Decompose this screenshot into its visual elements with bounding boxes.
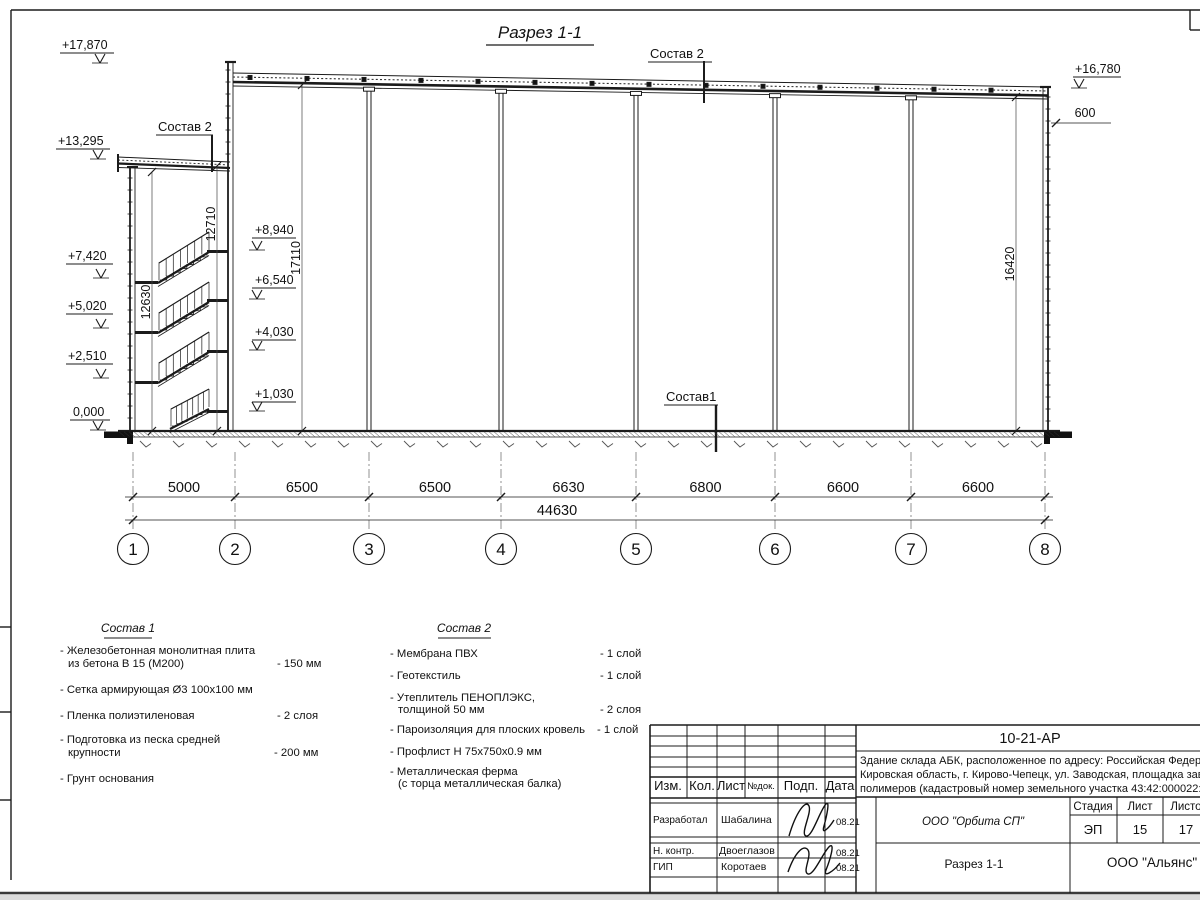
list-item: крупности: [68, 747, 121, 759]
ground-mark: [833, 441, 844, 447]
tb-sheets-label: Листов: [1170, 801, 1200, 813]
elevation-mark: 0,000: [70, 405, 110, 430]
elevation-arrow: [252, 402, 257, 411]
list-value: - 1 слой: [597, 724, 638, 736]
purlin-block: [362, 77, 366, 81]
tb-role: Н. контр.: [653, 846, 694, 857]
ground-mark: [998, 441, 1009, 447]
stair-flight: [170, 389, 209, 433]
annex-slabs: [135, 252, 228, 412]
grid-bubble-label: 8: [1040, 540, 1049, 559]
list-value: - 2 слоя: [600, 704, 641, 716]
foundation-right: [1044, 432, 1072, 445]
tb-drawing-name: Разрез 1-1: [945, 857, 1004, 871]
list-value: - 1 слой: [600, 648, 641, 660]
column-capital: [496, 89, 507, 93]
elevation-arrow: [1074, 79, 1079, 88]
elevation-value: +2,510: [68, 349, 107, 363]
annotations: Разрез 1-1 Состав 2 Состав 2 Состав1 126…: [139, 23, 1111, 405]
tb-name: Двоеглазов: [719, 845, 775, 857]
dim-600: 600: [1075, 106, 1096, 120]
purlin-block: [647, 82, 651, 86]
ground-mark: [569, 441, 580, 447]
elevation-value: +8,940: [255, 223, 294, 237]
purlin-block: [419, 78, 423, 82]
purlin-block: [704, 83, 708, 87]
dim-span-label: 6600: [827, 480, 859, 496]
ground-mark: [239, 441, 250, 447]
purlin-block: [875, 86, 879, 90]
callout-sostav1: Состав1: [666, 389, 716, 404]
ground-mark: [701, 441, 712, 447]
list-item: из бетона В 15 (М200): [68, 658, 184, 670]
elevation-value: +1,030: [255, 387, 294, 401]
tb-col-data: Дата: [826, 778, 856, 793]
elevation-arrow: [95, 54, 100, 63]
purlin-block: [248, 75, 252, 79]
ground-mark: [536, 441, 547, 447]
elevation-value: +4,030: [255, 325, 294, 339]
grid-bubble-label: 2: [230, 540, 239, 559]
grid-bubble-label: 5: [631, 540, 640, 559]
tb-name: Шабалина: [721, 814, 772, 826]
ground-mark: [965, 441, 976, 447]
list-item: толщиной 50 мм: [398, 704, 485, 716]
ground-mark: [305, 441, 316, 447]
ground-mark: [767, 441, 778, 447]
grid-bubble-label: 7: [906, 540, 915, 559]
dim-span-label: 5000: [168, 480, 200, 496]
tb-sheets-value: 17: [1179, 822, 1193, 837]
ground-mark: [734, 441, 745, 447]
elevation-value: +16,780: [1075, 62, 1121, 76]
ground-mark: [338, 441, 349, 447]
elevation-mark: +6,540: [249, 273, 296, 299]
section-drawing-sheet: Разрез 1-1 Состав 2 Состав 2 Состав1 126…: [0, 0, 1200, 900]
tb-sheet-label: Лист: [1128, 801, 1154, 813]
purlin-block: [989, 88, 993, 92]
ground-mark: [602, 441, 613, 447]
foundation-left: [104, 432, 133, 445]
ground-mark: [866, 441, 877, 447]
elevation-value: +6,540: [255, 273, 294, 287]
elevation-arrow: [93, 421, 98, 430]
dim-span-label: 6630: [552, 480, 584, 496]
elevation-mark: +13,295: [56, 134, 110, 159]
elevation-arrow: [96, 269, 101, 278]
list-value: - 200 мм: [274, 747, 318, 759]
sostav2-header: Состав 2: [437, 621, 491, 635]
column-capital: [906, 96, 917, 100]
tb-role: Разработал: [653, 814, 708, 826]
ground-mark: [140, 441, 151, 447]
dim-total-label: 44630: [537, 503, 577, 519]
grid-bubble-label: 3: [364, 540, 373, 559]
list-item: - Подготовка из песка средней: [60, 734, 220, 746]
building-section: [104, 61, 1072, 452]
stair-flight: [158, 332, 209, 387]
tb-org: ООО "Орбита СП": [922, 816, 1025, 828]
dim-span-label: 6800: [689, 480, 721, 496]
tb-col-podp: Подп.: [784, 778, 819, 793]
tb-sheet-value: 15: [1133, 822, 1147, 837]
ground-mark: [503, 441, 514, 447]
tb-col-kol: Кол.: [689, 778, 715, 793]
elevation-value: +5,020: [68, 299, 107, 313]
tb-date: 08.21: [836, 848, 860, 859]
ground-mark: [800, 441, 811, 447]
list-item: - Железобетонная монолитная плита: [60, 645, 256, 657]
ground-mark: [206, 441, 217, 447]
dim-span-label: 6500: [419, 480, 451, 496]
railing: [159, 232, 209, 263]
purlin-block: [932, 87, 936, 91]
ground-mark: [1031, 441, 1042, 447]
dim-span-label: 6600: [962, 480, 994, 496]
ground-mark: [272, 441, 283, 447]
list-item: - Профлист Н 75х750х0.9 мм: [390, 746, 542, 758]
stair-flight: [158, 282, 209, 337]
ground-mark: [932, 441, 943, 447]
elevation-value: +13,295: [58, 134, 104, 148]
ground-mark: [371, 441, 382, 447]
ground-mark: [668, 441, 679, 447]
elevation-arrow: [252, 341, 257, 350]
purlin-block: [590, 81, 594, 85]
signature: [789, 803, 834, 836]
elevation-mark: +2,510: [66, 349, 113, 378]
list-item: - Сетка армирующая Ø3 100х100 мм: [60, 684, 253, 696]
elevation-mark: +7,420: [66, 249, 113, 278]
list-item: - Мембрана ПВХ: [390, 648, 478, 660]
ground-mark: [173, 441, 184, 447]
dimension-chain: 1234567850006500650066306800660066004463…: [118, 452, 1061, 565]
tb-role: ГИП: [653, 862, 673, 873]
dim-span-label: 6500: [286, 480, 318, 496]
purlin-block: [533, 80, 537, 84]
elevation-arrow: [252, 241, 257, 250]
vdim-16420: 16420: [1003, 247, 1017, 282]
vdim-12630: 12630: [139, 285, 153, 320]
ground-mark: [404, 441, 415, 447]
list-item: - Грунт основания: [60, 773, 154, 785]
elevation-arrow: [93, 150, 98, 159]
tb-col-izm: Изм.: [654, 778, 682, 793]
sostav1-header: Состав 1: [101, 621, 155, 635]
stair-flight: [158, 232, 209, 287]
sostav1-list: Состав 1 - Железобетонная монолитная пли…: [60, 621, 321, 785]
elevation-value: +17,870: [62, 38, 108, 52]
signature: [788, 846, 840, 874]
elevation-arrow: [252, 290, 257, 299]
elevation-mark: +17,870: [60, 38, 114, 63]
column-capital: [770, 94, 781, 98]
railing: [159, 332, 209, 363]
column-capital: [364, 87, 375, 91]
tb-stage-label: Стадия: [1073, 801, 1112, 813]
list-value: - 150 мм: [277, 658, 321, 670]
list-value: - 1 слой: [600, 670, 641, 682]
elevation-mark: +1,030: [249, 387, 296, 411]
elevation-arrow: [96, 319, 101, 328]
tb-date: 08.21: [836, 817, 860, 828]
tb-name: Коротаев: [721, 861, 767, 873]
callout-sostav2-top: Состав 2: [650, 46, 704, 61]
callout-sostav2-left: Состав 2: [158, 119, 212, 134]
tb-doc-code: 10-21-АР: [999, 731, 1060, 747]
list-item: - Геотекстиль: [390, 670, 461, 682]
drawing-title: Разрез 1-1: [498, 23, 582, 42]
elevation-mark: +16,780: [1071, 62, 1121, 88]
ground-mark: [437, 441, 448, 447]
tb-desc-line2: Кировская область, г. Кирово-Чепецк, ул.…: [860, 769, 1200, 781]
elevation-mark: +5,020: [66, 299, 113, 328]
purlin-block: [818, 85, 822, 89]
list-item: - Утеплитель ПЕНОПЛЭКС,: [390, 692, 535, 704]
elevation-mark: +4,030: [249, 325, 296, 350]
elevation-arrow: [96, 369, 101, 378]
title-block: Изм. Кол. Лист №док. Подп. Дата Разработ…: [650, 725, 1200, 893]
elevation-value: +7,420: [68, 249, 107, 263]
tb-stage-value: ЭП: [1084, 822, 1103, 837]
purlin-block: [305, 76, 309, 80]
vdim-12710: 12710: [204, 207, 218, 242]
vdim-17110: 17110: [289, 241, 303, 275]
grid-bubble-label: 4: [496, 540, 505, 559]
tb-desc-line3: полимеров (кадастровый номер земельного …: [860, 783, 1200, 795]
tb-col-ndok: №док.: [747, 781, 775, 792]
ground-mark: [635, 441, 646, 447]
tb-desc-line1: Здание склада АБК, расположенное по адре…: [860, 755, 1200, 767]
grid-bubble-label: 6: [770, 540, 779, 559]
grid-bubble-label: 1: [128, 540, 137, 559]
list-item: - Пароизоляция для плоских кровель: [390, 724, 585, 736]
sostav2-list: Состав 2 - Мембрана ПВХ - 1 слой - Геоте…: [390, 621, 641, 790]
tb-col-list: Лист: [717, 778, 745, 793]
purlin-block: [476, 79, 480, 83]
tb-contractor: ООО "Альянс": [1107, 855, 1197, 870]
column-capital: [631, 91, 642, 95]
purlin-block: [761, 84, 765, 88]
ground-mark: [899, 441, 910, 447]
list-value: - 2 слоя: [277, 710, 318, 722]
elevation-value: 0,000: [73, 405, 104, 419]
list-item: - Пленка полиэтиленовая: [60, 710, 194, 722]
list-item: - Металлическая ферма: [390, 766, 518, 778]
list-item: (с торца металлическая балка): [398, 778, 562, 790]
ground-mark: [470, 441, 481, 447]
railing: [159, 282, 209, 313]
